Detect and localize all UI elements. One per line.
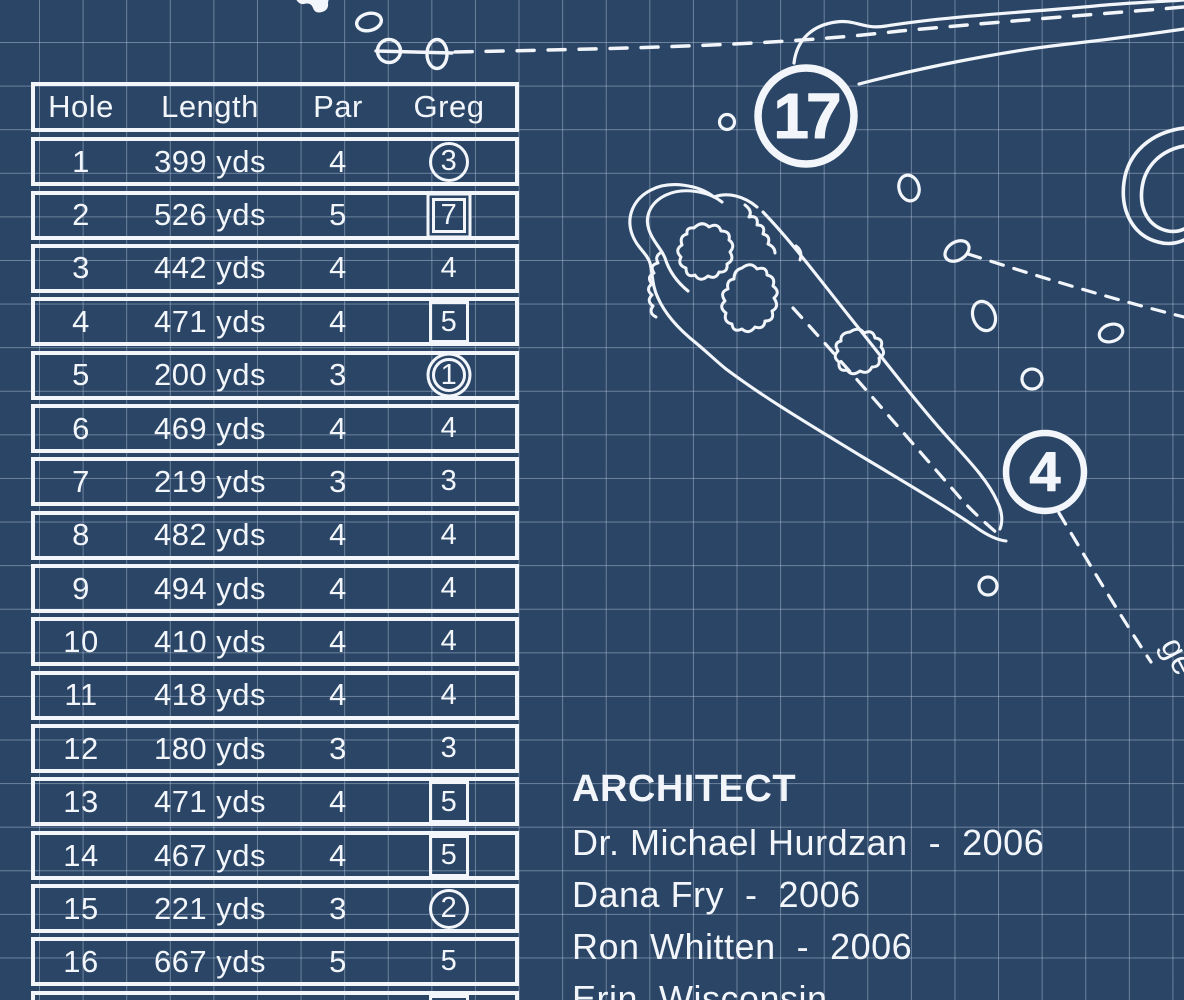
hole-17-marker: 17	[758, 68, 854, 164]
greg-cell: 5	[383, 835, 515, 877]
greg-score-marker: 3	[432, 732, 466, 766]
scorecard-row: 7219 yds33	[31, 457, 519, 506]
hole-17-centerline	[455, 7, 1184, 52]
greg-score-marker: 5	[429, 781, 469, 823]
hole-cell: 10	[35, 624, 127, 660]
architect-line: Erin, Wisconsin	[572, 973, 1044, 1000]
par-cell: 3	[293, 357, 383, 393]
right-edge-green	[1123, 128, 1184, 243]
length-cell: 399 yds	[127, 144, 293, 180]
length-cell: 482 yds	[127, 517, 293, 553]
bunker-squiggle	[745, 205, 775, 253]
architect-line: Dana Fry - 2006	[572, 869, 1044, 921]
length-cell: 221 yds	[127, 891, 293, 927]
architect-heading: ARCHITECT	[572, 768, 1044, 811]
greg-cell: 7	[383, 198, 515, 233]
architect-line: Ron Whitten - 2006	[572, 921, 1044, 973]
tee-line	[376, 51, 452, 53]
blueprint-canvas: 17 4 ge Hole Length Par Greg 1399 yds432…	[0, 0, 1184, 1000]
par-cell: 4	[293, 517, 383, 553]
greg-cell: 3	[383, 465, 515, 499]
scorecard-row: 9494 yds44	[31, 564, 519, 613]
scorecard-row: 13471 yds45	[31, 777, 519, 826]
par-cell: 4	[293, 571, 383, 607]
scorecard-row: 12180 yds33	[31, 724, 519, 773]
greg-cell: 4	[383, 678, 515, 712]
partial-map-label: ge	[1154, 631, 1184, 681]
scorecard-row: 4471 yds45	[31, 297, 519, 346]
hole-cell: 8	[35, 517, 127, 553]
tree-icon	[941, 236, 973, 265]
scorecard-table: Hole Length Par Greg 1399 yds432526 yds5…	[31, 82, 519, 1000]
length-cell: 442 yds	[127, 250, 293, 286]
hole-cell: 12	[35, 731, 127, 767]
hole-cell: 14	[35, 838, 127, 874]
hole-cell: 16	[35, 944, 127, 980]
scorecard-row: 1399 yds43	[31, 137, 519, 186]
scorecard-header: Hole Length Par Greg	[31, 82, 519, 132]
header-greg: Greg	[383, 89, 515, 125]
par-cell: 3	[293, 731, 383, 767]
scorecard-row: 10410 yds44	[31, 617, 519, 666]
par-cell: 4	[293, 677, 383, 713]
par-cell: 5	[293, 944, 383, 980]
par-cell: 4	[293, 250, 383, 286]
par-cell: 5	[293, 197, 383, 233]
greg-cell: 5	[383, 301, 515, 343]
par-cell: 4	[293, 784, 383, 820]
greg-cell: 3	[383, 142, 515, 182]
length-cell: 418 yds	[127, 677, 293, 713]
par-cell: 4	[293, 838, 383, 874]
hole-cell: 6	[35, 411, 127, 447]
tree-icon	[979, 577, 997, 595]
hole-4-centerline	[793, 308, 1151, 662]
scorecard-row: 2526 yds57	[31, 191, 519, 240]
scorecard-row: 6469 yds44	[31, 404, 519, 453]
par-cell: 4	[293, 144, 383, 180]
greg-cell: 5	[383, 781, 515, 823]
hole-17-fairway-outline	[794, 0, 1184, 84]
greg-score-marker: 7	[432, 198, 466, 233]
scorecard-row: 5200 yds31	[31, 351, 519, 400]
par-cell: 4	[293, 411, 383, 447]
greg-cell: 1	[383, 358, 515, 392]
hole-4-marker: 4	[1006, 433, 1084, 511]
tree-icon	[969, 298, 1000, 334]
tree-icon	[896, 173, 922, 203]
greg-score-marker: 5	[429, 835, 469, 877]
length-cell: 526 yds	[127, 197, 293, 233]
greg-cell	[383, 995, 515, 1000]
header-hole: Hole	[35, 89, 127, 125]
hole-cell: 5	[35, 357, 127, 393]
length-cell: 180 yds	[127, 731, 293, 767]
scorecard-row: 14467 yds45	[31, 831, 519, 880]
greg-score-marker: 4	[432, 625, 466, 659]
green-outer-contour	[630, 185, 1006, 541]
length-cell: 667 yds	[127, 944, 293, 980]
adjacent-hole-centerline	[968, 254, 1184, 317]
length-cell: 469 yds	[127, 411, 293, 447]
greg-cell: 3	[383, 732, 515, 766]
greg-cell: 5	[383, 945, 515, 979]
tree-icon	[355, 11, 383, 34]
scorecard-row: 3442 yds44	[31, 244, 519, 293]
par-cell: 4	[293, 304, 383, 340]
greg-cell: 4	[383, 625, 515, 659]
length-cell: 494 yds	[127, 571, 293, 607]
architect-line: Dr. Michael Hurdzan - 2006	[572, 817, 1044, 869]
length-cell: 467 yds	[127, 838, 293, 874]
greg-score-marker: 4	[432, 251, 466, 285]
par-cell: 3	[293, 464, 383, 500]
greg-cell: 4	[383, 412, 515, 446]
hole-cell: 3	[35, 250, 127, 286]
hole-cell: 9	[35, 571, 127, 607]
hole-4-number: 4	[1029, 440, 1060, 503]
bunker	[722, 265, 778, 332]
bunker-squiggle-top	[294, 0, 330, 13]
par-cell: 3	[293, 891, 383, 927]
tree-icon	[1022, 369, 1042, 389]
scorecard-row: 8482 yds44	[31, 511, 519, 560]
scorecard-row: 11418 yds44	[31, 671, 519, 720]
hole-cell: 2	[35, 197, 127, 233]
length-cell: 410 yds	[127, 624, 293, 660]
greg-score-marker: 5	[429, 301, 469, 343]
scorecard-row: 15221 yds32	[31, 884, 519, 933]
greg-score-marker: 1	[432, 358, 466, 392]
header-par: Par	[293, 89, 383, 125]
par-cell: 4	[293, 624, 383, 660]
bunker	[678, 224, 733, 280]
greg-score-marker: 4	[432, 412, 466, 446]
greg-cell: 4	[383, 572, 515, 606]
hole-cell: 7	[35, 464, 127, 500]
hole-cell: 11	[35, 677, 127, 713]
architect-block: ARCHITECT Dr. Michael Hurdzan - 2006 Dan…	[572, 768, 1044, 1000]
hole-cell: 13	[35, 784, 127, 820]
length-cell: 200 yds	[127, 357, 293, 393]
greg-cell: 4	[383, 251, 515, 285]
tree-icon	[1097, 321, 1125, 345]
greg-score-marker: 4	[432, 572, 466, 606]
tree-icon	[720, 115, 735, 130]
length-cell: 471 yds	[127, 784, 293, 820]
greg-score-marker: 4	[432, 518, 466, 552]
tee-markers	[355, 11, 452, 69]
greg-score-marker: 5	[432, 945, 466, 979]
header-length: Length	[127, 89, 293, 125]
hole-cell: 15	[35, 891, 127, 927]
greg-cell: 2	[383, 889, 515, 929]
hole-cell: 4	[35, 304, 127, 340]
greg-score-marker: 3	[432, 465, 466, 499]
hole-4-green-and-fairway	[630, 185, 1006, 541]
greg-score-marker: 4	[432, 678, 466, 712]
hole-cell: 1	[35, 144, 127, 180]
greg-cell: 4	[383, 518, 515, 552]
hole-17-number: 17	[773, 80, 839, 152]
greg-score-marker: 2	[429, 889, 469, 929]
length-cell: 219 yds	[127, 464, 293, 500]
greg-score-marker: 3	[429, 142, 469, 182]
scorecard-rows: 1399 yds432526 yds573442 yds444471 yds45…	[31, 137, 519, 1000]
length-cell: 471 yds	[127, 304, 293, 340]
scorecard-row	[31, 991, 519, 1000]
scorecard-row: 16667 yds55	[31, 937, 519, 986]
greg-score-marker	[429, 995, 469, 1000]
